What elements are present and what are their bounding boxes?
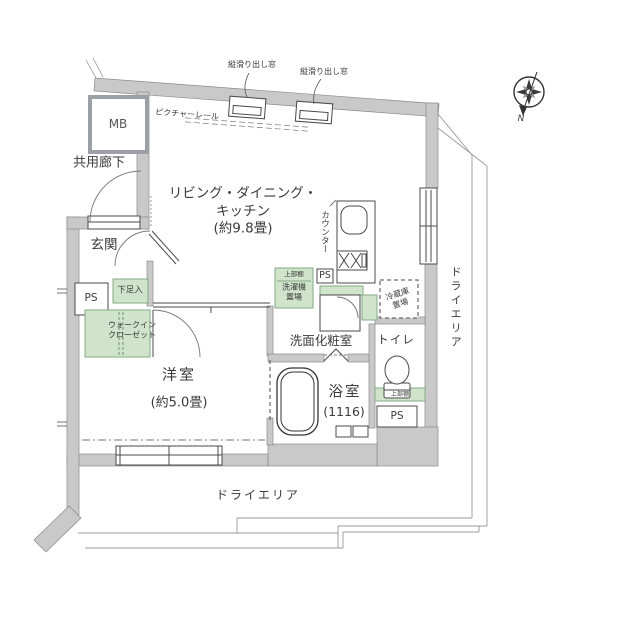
casement-window-right-label: 縦滑り出し窓 xyxy=(300,67,348,77)
hall-door-arc xyxy=(115,231,150,266)
bath-folding-door xyxy=(324,349,348,361)
stove xyxy=(337,251,367,270)
shoe-box-label: 下足入 xyxy=(117,285,143,296)
western-room-size-label: (約5.0畳) xyxy=(151,396,208,413)
compass-north-label: N xyxy=(518,114,525,126)
dry-area-bottom-label: ドライエリア xyxy=(216,488,300,504)
walk-in-closet-label: ウォークイン クローゼット xyxy=(108,321,156,342)
closet-door xyxy=(153,310,200,357)
right-wall-upper xyxy=(426,103,438,188)
bath-step xyxy=(336,426,351,437)
vanity-cabinet xyxy=(320,295,360,331)
right-wall-lower xyxy=(425,264,437,428)
mb-label: MB xyxy=(109,117,128,133)
front-door xyxy=(88,171,141,229)
casement-window-left-label: 縦滑り出し窓 xyxy=(228,60,276,70)
dry-area-right-label: ドライエリア xyxy=(448,266,462,350)
sliding-door xyxy=(153,303,270,313)
vanity-shelf xyxy=(320,286,363,295)
left-diagonal-wall xyxy=(34,506,81,552)
ps-entrance-label: PS xyxy=(85,292,98,306)
toilet-label: トイレ xyxy=(377,333,415,348)
bathtub xyxy=(277,368,318,435)
washroom-label: 洗面化粧室 xyxy=(290,333,353,349)
compass-icon xyxy=(514,72,544,116)
washer-shelf-label: 上部棚 xyxy=(284,270,304,278)
right-window xyxy=(420,188,437,264)
bathroom-bottom-wall xyxy=(268,444,377,466)
kitchen-sink xyxy=(341,206,367,234)
floor-plan: MB 共用廊下 玄関 PS 下足入 ウォークイン クローゼット 洋室 (約5.0… xyxy=(0,0,640,640)
washer-label: 洗濯機 置場 xyxy=(282,282,306,301)
service-ticks xyxy=(57,289,67,426)
ldk-label: リビング・ダイニング・ キッチン (約9.8畳) xyxy=(169,186,318,239)
entrance-label: 玄関 xyxy=(91,237,118,255)
toilet-shelf-label: 上部棚 xyxy=(391,391,409,399)
bath-counter xyxy=(353,426,368,437)
bottom-right-wall xyxy=(377,427,438,466)
floorplan-drawing xyxy=(0,0,640,640)
western-room-label: 洋室 xyxy=(162,365,196,385)
western-room-window xyxy=(116,446,222,465)
ps-lower-label: PS xyxy=(391,410,404,424)
ps-kitchen-label: PS xyxy=(319,270,331,282)
left-wall xyxy=(67,217,79,515)
common-corridor-label: 共用廊下 xyxy=(73,156,125,173)
counter-label: カウンター xyxy=(318,211,329,254)
bathroom-label: 浴室 xyxy=(329,384,362,403)
vanity-side-cabinet xyxy=(362,295,377,320)
kitchen-counter xyxy=(330,200,375,283)
bathroom-size-label: (1116) xyxy=(323,404,365,420)
